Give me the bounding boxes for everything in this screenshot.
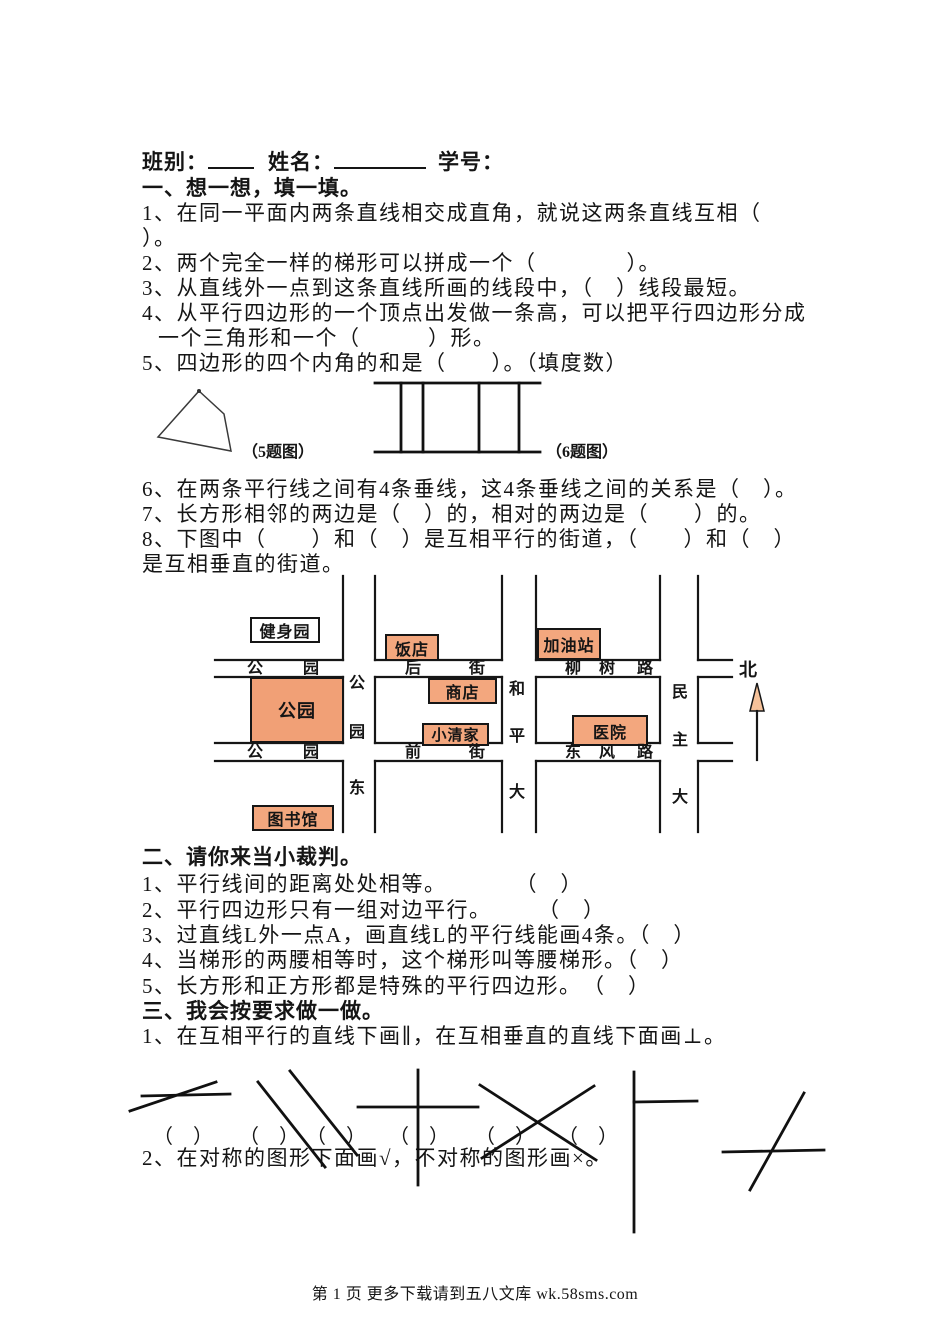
- street-name-char: 公: [347, 675, 367, 692]
- map-building-park: 公园: [250, 677, 344, 743]
- street-name-char: 街: [467, 744, 487, 761]
- section2-title: 二、请你来当小裁判。: [142, 845, 362, 869]
- section1-title: 一、想一想，填一填。: [142, 176, 362, 200]
- question-1-8-line1: 8、下图中（ ）和（ ）是互相平行的街道，（ ）和（ ）: [142, 527, 796, 551]
- pair5-horizontal-line: [634, 1101, 697, 1102]
- answer-paren-2: （ ）: [239, 1120, 299, 1149]
- figure5-caption: （5题图）: [242, 438, 314, 462]
- page-footer: 第 1 页 更多下载请到五八文库 wk.58sms.com: [0, 1280, 950, 1304]
- street-name-char: 东: [347, 780, 367, 797]
- street-name-char: 平: [507, 728, 527, 745]
- street-name-char: 公: [245, 744, 265, 761]
- question-1-6: 6、在两条平行线之间有4条垂线，这4条垂线之间的关系是（ ）。: [142, 477, 798, 501]
- question-2-4: 4、当梯形的两腰相等时，这个梯形叫等腰梯形。（ ）: [142, 948, 684, 972]
- question-3-2: 2、在对称的图形下面画√，不对称的图形画×。: [142, 1146, 608, 1170]
- street-name-char: 树: [597, 660, 617, 677]
- question-2-2: 2、平行四边形只有一组对边平行。 （ ）: [142, 898, 606, 922]
- pair1-line-a: [142, 1094, 230, 1096]
- street-name-char: 风: [597, 744, 617, 761]
- figure6-caption: （6题图）: [546, 438, 618, 462]
- street-name-char: 路: [635, 660, 655, 677]
- street-name-char: 大: [670, 789, 690, 806]
- worksheet-page: 班别：姓名：学号： 一、想一想，填一填。 1、在同一平面内两条直线相交成直角，就…: [0, 0, 950, 1344]
- street-name-char: 大: [507, 784, 527, 801]
- pair6-diagonal-line: [750, 1093, 804, 1190]
- map-building-xiaoqing-home: 小清家: [422, 723, 489, 746]
- street-name-char: 园: [347, 724, 367, 741]
- street-name-char: 主: [670, 732, 690, 749]
- map-building-hospital: 医院: [572, 715, 648, 746]
- question-1-5: 5、四边形的四个内角的和是（ ）。（填度数）: [142, 351, 628, 375]
- answer-paren-6: （ ）: [558, 1120, 618, 1149]
- street-name-char: 前: [403, 744, 423, 761]
- street-map: 健身园 饭店 加油站 商店 公园 小清家 医院 图书馆 公 园 后 街 柳 树 …: [205, 572, 790, 840]
- pair6-horizontal-line: [723, 1150, 824, 1152]
- question-3-1: 1、在互相平行的直线下画∥，在互相垂直的直线下面画⊥。: [142, 1024, 726, 1048]
- north-arrow-head: [750, 683, 764, 711]
- answer-paren-5: （ ）: [475, 1120, 535, 1149]
- question-1-1-line2: ）。: [142, 226, 177, 250]
- header-line: 班别：姓名：学号：: [142, 150, 504, 174]
- class-label: 班别：: [142, 150, 208, 174]
- street-name-char: 后: [403, 660, 423, 677]
- map-building-shop: 商店: [428, 678, 497, 704]
- street-name-char: 园: [301, 660, 321, 677]
- class-blank-underline: [208, 152, 254, 169]
- street-name-char: 民: [670, 684, 690, 701]
- street-name-char: 街: [467, 660, 487, 677]
- question-2-1: 1、平行线间的距离处处相等。 （ ）: [142, 872, 583, 896]
- street-name-char: 公: [245, 660, 265, 677]
- question-1-2: 2、两个完全一样的梯形可以拼成一个（ ）。: [142, 251, 661, 275]
- answer-paren-3: （ ）: [306, 1120, 366, 1149]
- name-blank-underline: [334, 152, 426, 169]
- pair1-line-b: [130, 1082, 216, 1111]
- quadrilateral-figure: [158, 391, 231, 451]
- map-building-fitness-park: 健身园: [250, 617, 320, 643]
- question-2-5: 5、长方形和正方形都是特殊的平行四边形。 （ ）: [142, 974, 651, 998]
- section3-title: 三、我会按要求做一做。: [142, 999, 384, 1023]
- quadrilateral-vertex-dot: [197, 389, 201, 393]
- question-1-4-line1: 4、从平行四边形的一个顶点出发做一条高，可以把平行四边形分成: [142, 301, 807, 325]
- question-1-4-line2: 一个三角形和一个（ ）形。: [158, 326, 496, 350]
- question-2-3: 3、过直线L外一点A，画直线L的平行线能画4条。（ ）: [142, 923, 696, 947]
- answer-paren-4: （ ）: [389, 1120, 449, 1149]
- map-building-library: 图书馆: [252, 805, 334, 831]
- question-1-7: 7、长方形相邻的两边是（ ）的，相对的两边是（ ）的。: [142, 502, 762, 526]
- answer-paren-1: （ ）: [153, 1120, 213, 1149]
- street-name-char: 东: [563, 744, 583, 761]
- name-label: 姓名：: [268, 150, 334, 174]
- map-building-restaurant: 饭店: [385, 634, 439, 661]
- north-label: 北: [739, 656, 757, 682]
- street-name-char: 园: [301, 744, 321, 761]
- map-building-gas-station: 加油站: [537, 628, 601, 660]
- question-1-3: 3、从直线外一点到这条直线所画的线段中，（ ）线段最短。: [142, 276, 751, 300]
- question-1-1-line1: 1、在同一平面内两条直线相交成直角，就说这两条直线互相（: [142, 201, 762, 225]
- street-name-char: 和: [507, 681, 527, 698]
- street-name-char: 柳: [563, 660, 583, 677]
- street-name-char: 路: [635, 744, 655, 761]
- student-id-label: 学号：: [438, 150, 504, 174]
